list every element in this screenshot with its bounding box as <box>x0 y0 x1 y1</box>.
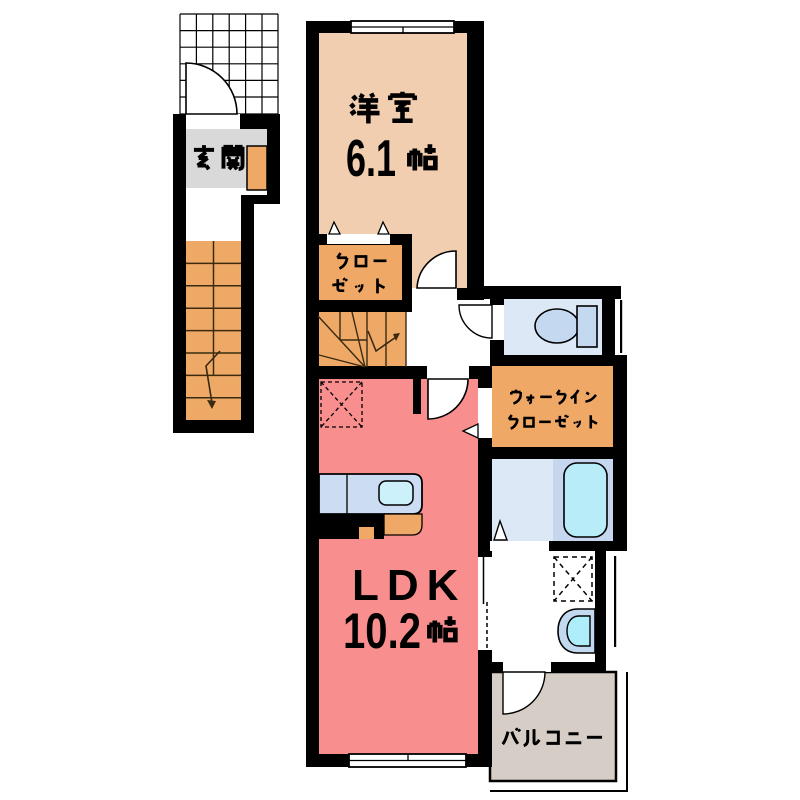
svg-text:10.2: 10.2 <box>343 603 421 659</box>
svg-text:6.1: 6.1 <box>346 130 396 188</box>
